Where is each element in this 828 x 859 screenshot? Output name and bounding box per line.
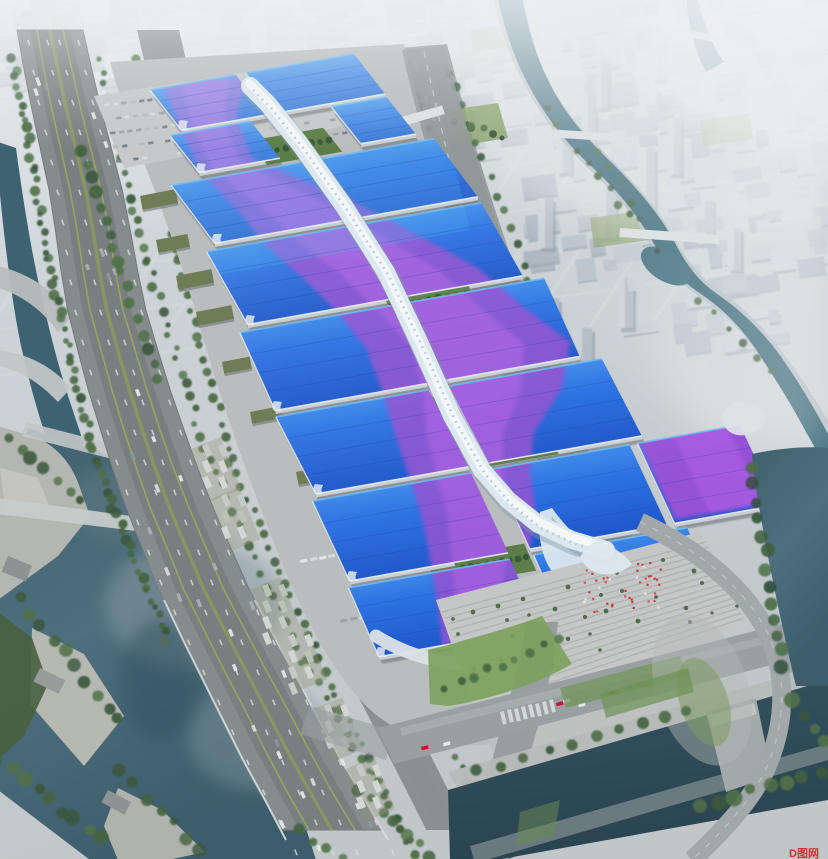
svg-text:D图网: D图网 — [789, 847, 819, 859]
